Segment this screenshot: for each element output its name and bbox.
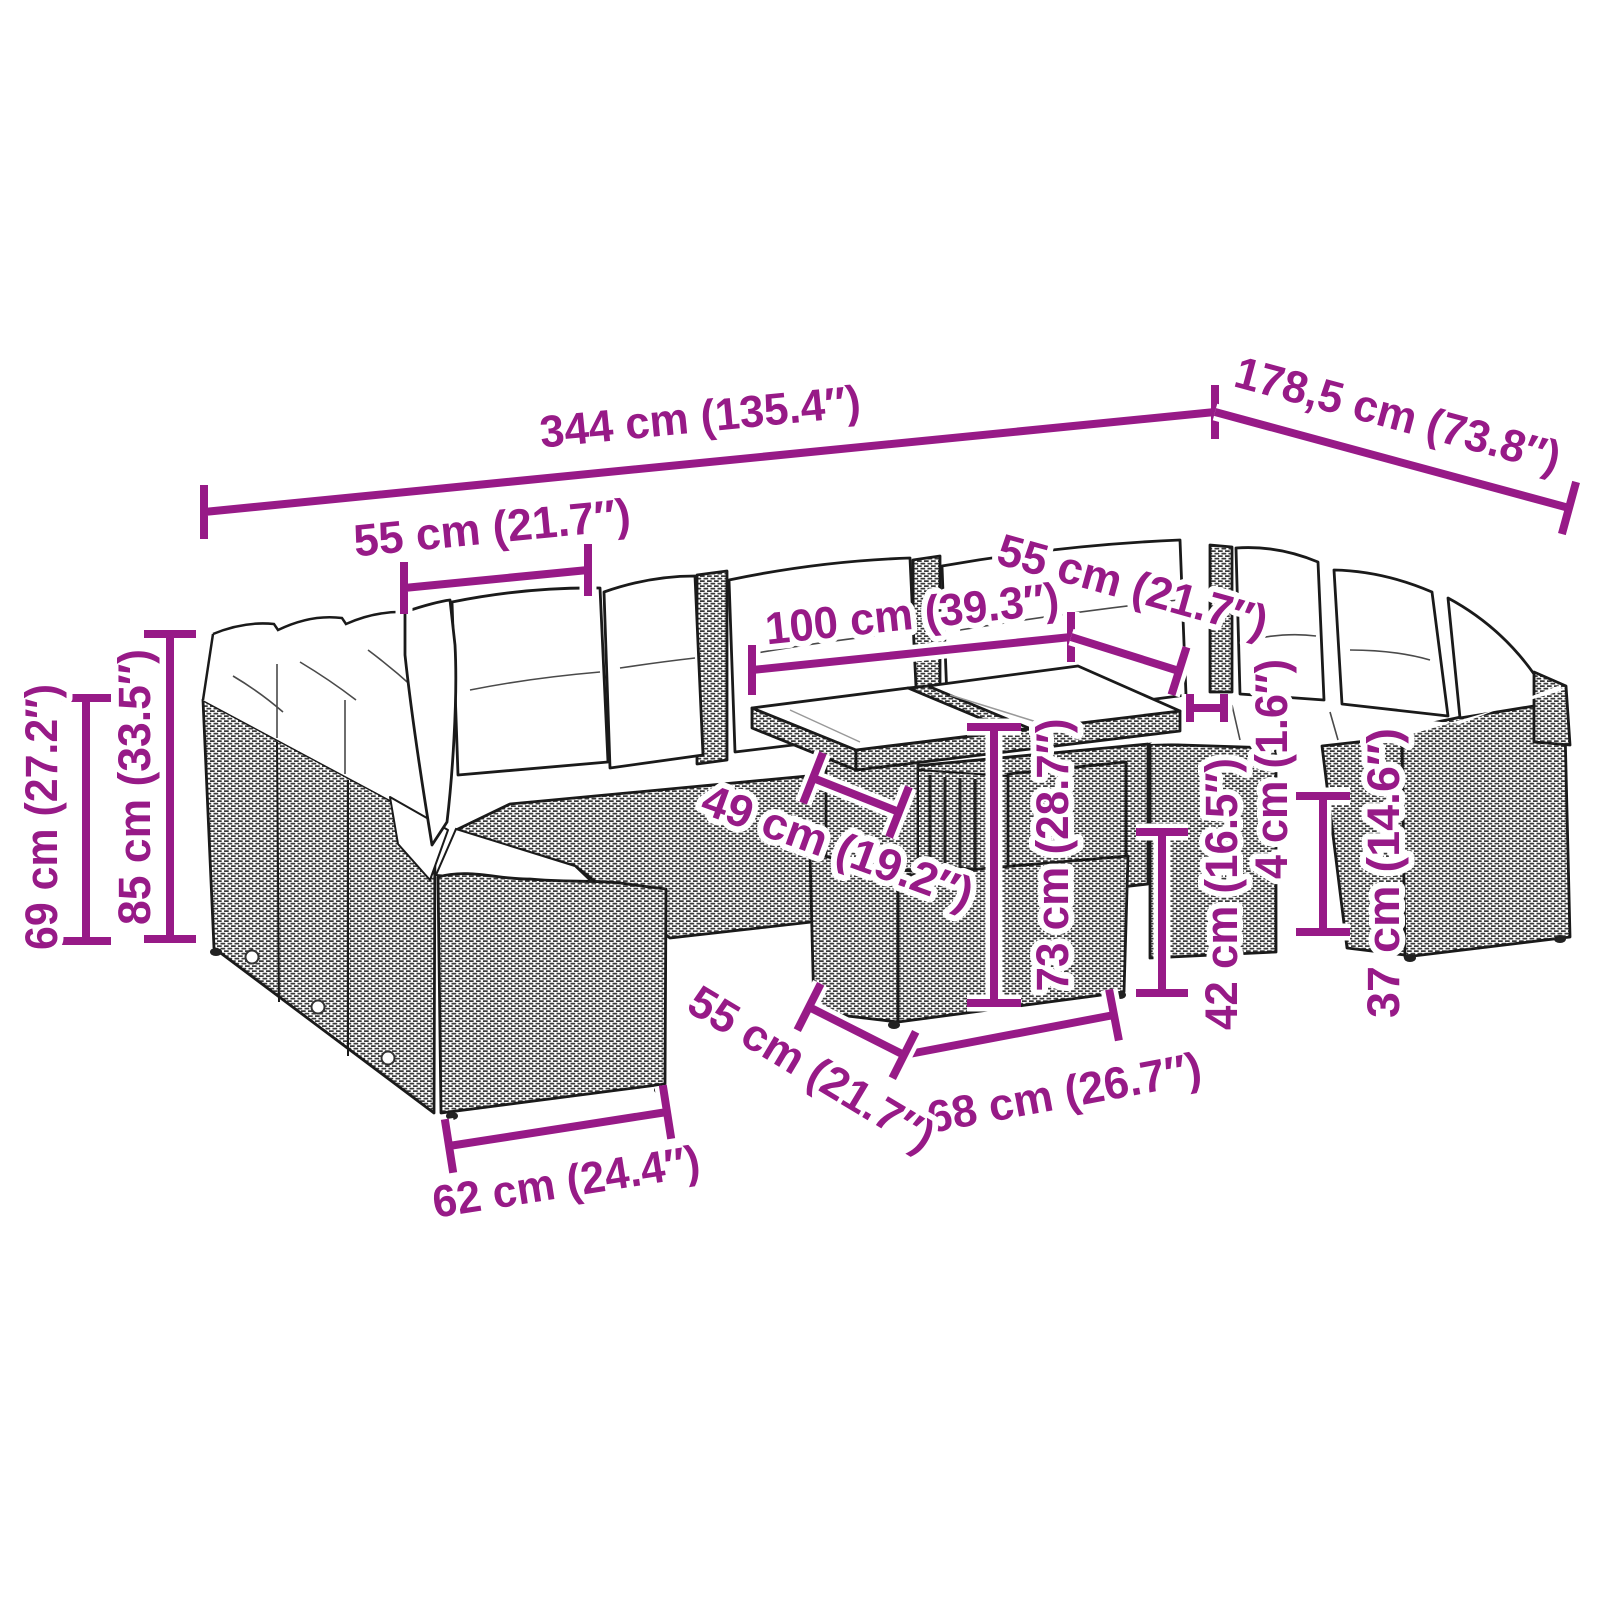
svg-text:73 cm (28.7″): 73 cm (28.7″)	[1027, 719, 1078, 992]
svg-text:4 cm (1.6″): 4 cm (1.6″)	[1246, 659, 1297, 879]
svg-text:37 cm (14.6″): 37 cm (14.6″)	[1358, 728, 1409, 1018]
svg-text:85 cm (33.5″): 85 cm (33.5″)	[109, 649, 160, 925]
svg-text:69 cm (27.2″): 69 cm (27.2″)	[16, 684, 67, 950]
svg-text:42 cm (16.5″): 42 cm (16.5″)	[1196, 758, 1247, 1030]
